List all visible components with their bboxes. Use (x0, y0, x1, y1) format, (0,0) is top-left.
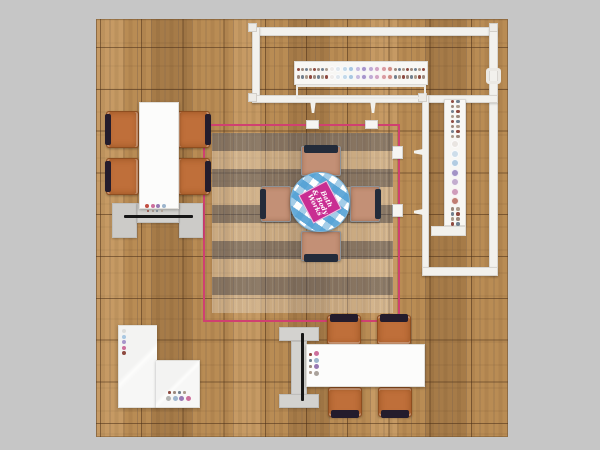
dot (418, 68, 422, 72)
media-stand-bottom-bar (279, 394, 319, 408)
dot (183, 391, 186, 394)
dot-row (451, 217, 460, 221)
logo-dot-cluster (314, 351, 319, 376)
tv-screen (124, 215, 193, 218)
dot (314, 358, 319, 363)
dot (381, 66, 387, 72)
booth-plan-render: Bath & Body Works (0, 0, 600, 450)
chair (106, 111, 139, 148)
wall-right (489, 27, 498, 276)
dot (317, 68, 321, 72)
dot (178, 391, 181, 394)
dot (297, 75, 301, 79)
dot (355, 66, 361, 72)
dot (309, 353, 312, 356)
dot (456, 115, 460, 119)
dot (402, 68, 406, 72)
truss-clamp (392, 204, 403, 217)
dot (451, 130, 455, 134)
dot (297, 68, 301, 72)
media-stand-top-bar (279, 327, 319, 341)
dot (451, 188, 459, 196)
dot (314, 371, 319, 376)
chair-back (380, 314, 408, 322)
dot (451, 140, 459, 148)
dot (451, 197, 459, 205)
dot (314, 364, 319, 369)
wall-back-top (252, 27, 498, 36)
truss-clamp (392, 146, 403, 159)
dot-row (451, 100, 460, 104)
dot (368, 74, 374, 80)
dot (329, 66, 335, 72)
dot (348, 66, 354, 72)
dot (456, 110, 460, 114)
dot (361, 66, 367, 72)
dot (406, 75, 410, 79)
dot (451, 100, 455, 104)
dot (451, 217, 455, 221)
dot-section (451, 207, 460, 226)
conference-table-left (139, 102, 179, 209)
dot (361, 74, 367, 80)
dot (398, 75, 402, 79)
dot (410, 68, 414, 72)
brand-logo: Bath & Body Works (298, 180, 341, 223)
dot (374, 74, 380, 80)
chair-back (205, 114, 211, 145)
dot (414, 75, 418, 79)
chair-back (375, 189, 381, 219)
chair-back (304, 145, 338, 153)
logo-dot-cluster (309, 353, 312, 374)
dot-row (451, 135, 460, 139)
graphic-wall-right-endcap (431, 226, 466, 236)
dot (325, 75, 329, 79)
dot (451, 120, 455, 124)
chair (177, 158, 210, 195)
dot (152, 210, 154, 212)
door-latch-icon (486, 68, 501, 84)
dot (451, 115, 455, 119)
dot (313, 68, 317, 72)
dot (387, 74, 393, 80)
logo-dot-cluster (147, 210, 163, 212)
dot (398, 68, 402, 72)
dot (451, 212, 455, 216)
dot (451, 207, 455, 211)
dot (394, 68, 398, 72)
dot-row (451, 105, 460, 109)
dot (456, 130, 460, 134)
dot (173, 391, 176, 394)
dot (456, 217, 460, 221)
dot (451, 110, 455, 114)
chair-back (331, 410, 359, 418)
dot (451, 159, 459, 167)
dot (122, 329, 126, 333)
dot (147, 210, 149, 212)
dot (314, 351, 319, 356)
logo-dot-cluster (168, 391, 186, 394)
chair (378, 387, 412, 417)
dot (179, 396, 184, 401)
dot (456, 222, 460, 226)
dot-section (451, 140, 459, 205)
logo-dot-cluster (145, 204, 166, 208)
wall-closet-bottom (422, 267, 498, 276)
dot (309, 365, 312, 368)
dot (381, 74, 387, 80)
dot (410, 75, 414, 79)
dot (309, 359, 312, 362)
dot (418, 75, 422, 79)
dot-row (295, 66, 427, 72)
wall-post (489, 23, 498, 32)
dot (186, 396, 191, 401)
dot-row (451, 110, 460, 114)
chair (327, 315, 361, 345)
chair (377, 315, 411, 345)
dot (451, 135, 455, 139)
wall-closet-left (422, 95, 429, 276)
dot-row (451, 212, 460, 216)
dot-row (451, 222, 460, 226)
dot (348, 74, 354, 80)
dot (122, 346, 126, 350)
dot (451, 222, 455, 226)
dot (325, 68, 329, 72)
dot (122, 340, 126, 344)
chair-back (330, 314, 358, 322)
dot (329, 74, 335, 80)
dot (406, 68, 410, 72)
dot (321, 75, 325, 79)
chair-back (304, 254, 338, 262)
conference-table-bottom (306, 344, 425, 387)
chair (177, 111, 210, 148)
dot (451, 150, 459, 158)
media-stand-stem (291, 341, 307, 395)
dot (422, 68, 426, 72)
dot-row (451, 115, 460, 119)
dot (414, 68, 418, 72)
graphic-wall-top-frame (296, 85, 426, 99)
dot (394, 75, 398, 79)
dot (402, 75, 406, 79)
dot (151, 204, 155, 208)
chair-back (105, 161, 111, 192)
dot (313, 75, 317, 79)
dot (122, 335, 126, 339)
dot (161, 210, 163, 212)
truss-clamp (365, 120, 378, 129)
media-stand-left-block (112, 203, 137, 238)
round-meeting-table: Bath & Body Works (290, 172, 350, 232)
graphic-wall-right (444, 99, 466, 226)
dot (335, 66, 341, 72)
chair (301, 231, 341, 261)
dot (145, 204, 149, 208)
dot (173, 396, 178, 401)
chair-back (381, 410, 409, 418)
dot-row (295, 74, 427, 80)
dot (335, 74, 341, 80)
dot (166, 396, 171, 401)
dot (355, 74, 361, 80)
dot (374, 66, 380, 72)
dot (456, 100, 460, 104)
chair (106, 158, 139, 195)
graphic-wall-top (294, 61, 428, 85)
wall-post (248, 23, 257, 32)
dot (305, 75, 309, 79)
dot (456, 125, 460, 129)
dot (122, 351, 126, 355)
dot-row (451, 207, 460, 211)
dot (456, 212, 460, 216)
logo-dot-cluster (166, 396, 191, 401)
dot (342, 74, 348, 80)
dot (305, 68, 309, 72)
dot (301, 75, 305, 79)
logo-dot-cluster (122, 329, 126, 355)
dot-section (451, 100, 460, 139)
dot (309, 68, 313, 72)
tv-screen (301, 333, 304, 401)
chair (261, 186, 291, 222)
truss-clamp (306, 120, 319, 129)
dot (422, 75, 426, 79)
wall-back-left (252, 27, 260, 103)
dot (368, 66, 374, 72)
dot (451, 105, 455, 109)
dot (156, 204, 160, 208)
dot (456, 207, 460, 211)
dot (342, 66, 348, 72)
dot (156, 210, 158, 212)
dot (162, 204, 166, 208)
dot (456, 105, 460, 109)
chair (350, 186, 380, 222)
dot (309, 75, 313, 79)
dot (387, 66, 393, 72)
chair (328, 387, 362, 417)
dot (451, 125, 455, 129)
chair-back (205, 161, 211, 192)
chair-back (260, 189, 266, 219)
dot (321, 68, 325, 72)
dot (456, 120, 460, 124)
dot (317, 75, 321, 79)
dot-row (451, 120, 460, 124)
dot (456, 135, 460, 139)
media-stand-right-block (179, 203, 203, 238)
dot (451, 169, 459, 177)
dot (168, 391, 171, 394)
dot (451, 178, 459, 186)
wall-post (248, 93, 257, 102)
dot-row (451, 125, 460, 129)
dot-row (451, 130, 460, 134)
dot (301, 68, 305, 72)
chair-back (105, 114, 111, 145)
dot (309, 371, 312, 374)
